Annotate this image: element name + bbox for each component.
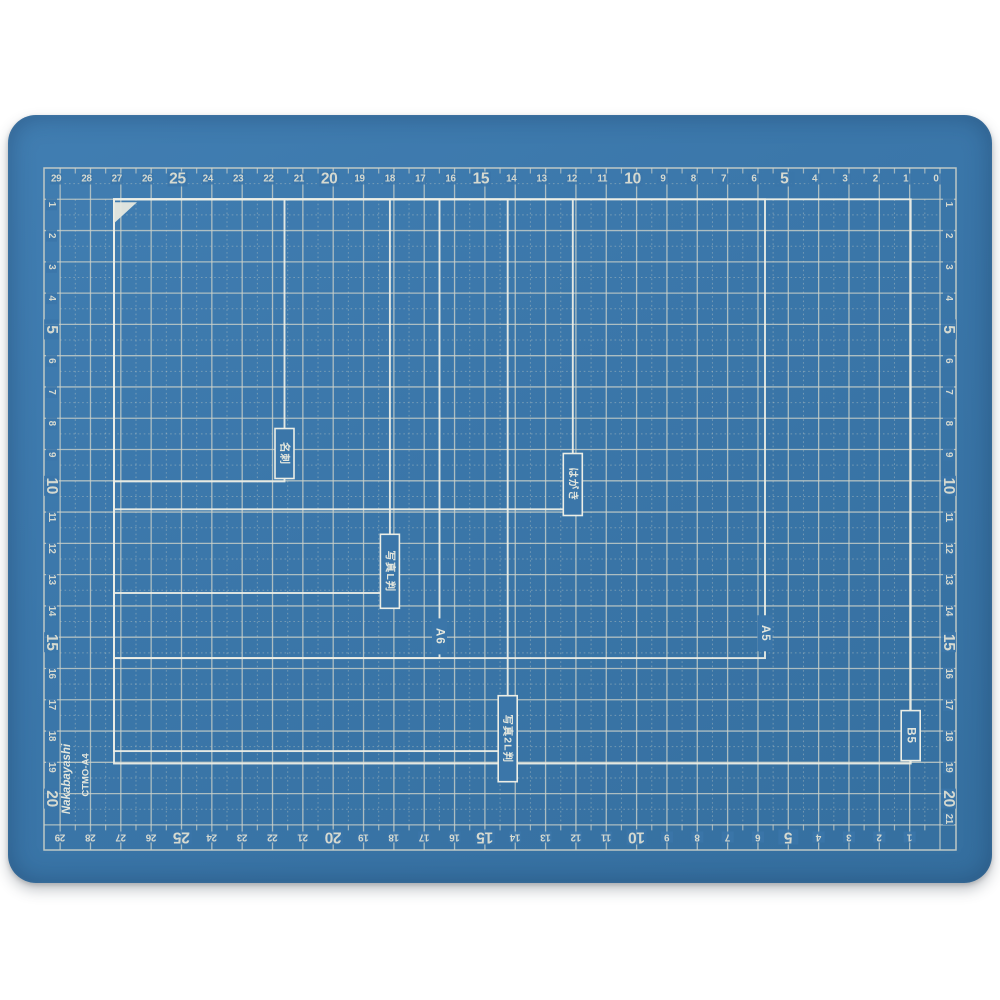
ruler-number: 20 bbox=[43, 790, 60, 807]
ruler-number: 1 bbox=[906, 832, 912, 843]
ruler-number: 10 bbox=[43, 477, 60, 494]
ruler-number: 10 bbox=[628, 829, 645, 846]
ruler-number: 8 bbox=[943, 421, 954, 427]
ruler-number: 24 bbox=[206, 832, 217, 843]
ruler-number: 13 bbox=[943, 574, 954, 585]
ruler-number: 15 bbox=[476, 829, 493, 846]
ruler-number: 5 bbox=[43, 325, 60, 334]
ruler-number: 18 bbox=[388, 832, 399, 843]
paper-size-outlines: 名刺写真L判はがきA6A5写真2L判B5 bbox=[114, 199, 920, 781]
size-label-a6: A6 bbox=[434, 628, 446, 645]
ruler-number: 1 bbox=[903, 174, 909, 185]
brand-logo: Nakabayashi bbox=[61, 743, 73, 814]
ruler-number: 15 bbox=[940, 634, 957, 651]
ruler-number: 16 bbox=[449, 832, 460, 843]
ruler-number: 20 bbox=[940, 790, 957, 807]
ruler-number: 7 bbox=[721, 174, 727, 185]
ruler-number: 6 bbox=[943, 358, 954, 364]
cutting-mat: 名刺写真L判はがきA6A5写真2L判B529282726252423222120… bbox=[8, 115, 992, 883]
size-label-a5: A5 bbox=[759, 625, 771, 642]
ruler-number: 10 bbox=[624, 171, 641, 188]
ruler-number: 26 bbox=[142, 174, 153, 185]
ruler-number: 25 bbox=[173, 829, 190, 846]
ruler-number: 29 bbox=[54, 832, 65, 843]
ruler-number: 8 bbox=[46, 421, 57, 427]
ruler-number: 4 bbox=[812, 174, 818, 185]
ruler-number: 17 bbox=[46, 700, 57, 711]
ruler-number: 20 bbox=[321, 171, 338, 188]
ruler-number: 16 bbox=[46, 668, 57, 679]
ruler-number: 4 bbox=[46, 296, 57, 302]
ruler-number: 25 bbox=[169, 171, 186, 188]
ruler-number: 12 bbox=[570, 832, 581, 843]
ruler-number: 17 bbox=[418, 832, 429, 843]
ruler-number: 13 bbox=[536, 174, 547, 185]
ruler-number: 3 bbox=[943, 264, 954, 270]
ruler-number: 19 bbox=[943, 762, 954, 773]
mat-artwork: 名刺写真L判はがきA6A5写真2L判B529282726252423222120… bbox=[8, 115, 992, 883]
left-ruler: 1234567891011121314151617181920 bbox=[43, 198, 60, 808]
ruler-number: 12 bbox=[943, 543, 954, 554]
ruler-number: 14 bbox=[509, 832, 520, 843]
ruler-number: 18 bbox=[943, 731, 954, 742]
ruler-number: 13 bbox=[46, 574, 57, 585]
ruler-number: 11 bbox=[46, 512, 57, 523]
outline-hagaki-postcard bbox=[114, 199, 573, 509]
ruler-number: 27 bbox=[115, 832, 126, 843]
ruler-number: 4 bbox=[815, 832, 821, 843]
size-label-business-card: 名刺 bbox=[279, 442, 292, 465]
size-label-photo-2l: 写真2L判 bbox=[502, 714, 515, 763]
ruler-number: 26 bbox=[145, 832, 156, 843]
ruler-number: 2 bbox=[943, 233, 954, 239]
ruler-number: 3 bbox=[842, 174, 848, 185]
ruler-number: 23 bbox=[236, 832, 247, 843]
ruler-number: 16 bbox=[445, 174, 456, 185]
corner-marker-triangle bbox=[114, 202, 137, 223]
ruler-number: 20 bbox=[325, 829, 342, 846]
ruler-number: 23 bbox=[233, 174, 244, 185]
ruler-number: 11 bbox=[601, 832, 612, 843]
ruler-number: 19 bbox=[358, 832, 369, 843]
ruler-number: 1 bbox=[943, 202, 954, 208]
ruler-number: 27 bbox=[112, 174, 123, 185]
ruler-number: 21 bbox=[297, 832, 308, 843]
ruler-number: 7 bbox=[724, 832, 730, 843]
ruler-number: 16 bbox=[943, 668, 954, 679]
ruler-number: 6 bbox=[46, 358, 57, 364]
ruler-number: 2 bbox=[873, 174, 879, 185]
ruler-number: 21 bbox=[294, 174, 305, 185]
ruler-number: 6 bbox=[755, 832, 761, 843]
ruler-number: 9 bbox=[46, 452, 57, 458]
ruler-number: 9 bbox=[664, 832, 670, 843]
ruler-number: 15 bbox=[473, 171, 490, 188]
ruler-number: 7 bbox=[943, 389, 954, 395]
ruler-number: 5 bbox=[783, 829, 792, 846]
ruler-number: 22 bbox=[263, 174, 274, 185]
ruler-number: 10 bbox=[940, 477, 957, 494]
ruler-number: 21 bbox=[943, 814, 954, 825]
ruler-number: 8 bbox=[694, 832, 700, 843]
ruler-number: 19 bbox=[354, 174, 365, 185]
size-label-photo-l: 写真L判 bbox=[384, 550, 397, 592]
ruler-number: 14 bbox=[506, 174, 517, 185]
size-label-hagaki-postcard: はがき bbox=[567, 467, 580, 502]
ruler-number: 22 bbox=[267, 832, 278, 843]
size-label-b5: B5 bbox=[905, 727, 917, 744]
ruler-number: 11 bbox=[597, 174, 608, 185]
ruler-number: 7 bbox=[46, 389, 57, 395]
ruler-number: 12 bbox=[567, 174, 578, 185]
ruler-number: 6 bbox=[751, 174, 757, 185]
ruler-number: 9 bbox=[660, 174, 666, 185]
ruler-number: 17 bbox=[415, 174, 426, 185]
model-number: CTMO-A4 bbox=[81, 753, 92, 797]
ruler-number: 28 bbox=[84, 832, 95, 843]
ruler-number: 13 bbox=[540, 832, 551, 843]
ruler-number: 28 bbox=[81, 174, 92, 185]
ruler-number: 19 bbox=[46, 762, 57, 773]
ruler-number: 14 bbox=[46, 606, 57, 617]
ruler-number: 4 bbox=[943, 296, 954, 302]
bottom-ruler: 2928272625242322212019181716151413121110… bbox=[54, 829, 916, 846]
ruler-number: 2 bbox=[876, 832, 882, 843]
ruler-number: 1 bbox=[46, 202, 57, 208]
ruler-number: 8 bbox=[691, 174, 697, 185]
ruler-number: 12 bbox=[46, 543, 57, 554]
ruler-number: 18 bbox=[385, 174, 396, 185]
ruler-number: 3 bbox=[846, 832, 852, 843]
ruler-number: 29 bbox=[51, 174, 62, 185]
ruler-number: 5 bbox=[780, 171, 789, 188]
ruler-number: 0 bbox=[933, 174, 939, 185]
photo-background: { "page": { "background_color": "#ffffff… bbox=[0, 0, 1000, 1000]
ruler-number: 15 bbox=[43, 634, 60, 651]
ruler-number: 5 bbox=[940, 325, 957, 334]
ruler-number: 11 bbox=[943, 512, 954, 523]
ruler-number: 3 bbox=[46, 264, 57, 270]
ruler-number: 14 bbox=[943, 606, 954, 617]
ruler-number: 17 bbox=[943, 700, 954, 711]
top-ruler: 2928272625242322212019181716151413121110… bbox=[50, 171, 942, 188]
ruler-number: 9 bbox=[943, 452, 954, 458]
ruler-number: 2 bbox=[46, 233, 57, 239]
ruler-number: 24 bbox=[203, 174, 214, 185]
ruler-number: 18 bbox=[46, 731, 57, 742]
